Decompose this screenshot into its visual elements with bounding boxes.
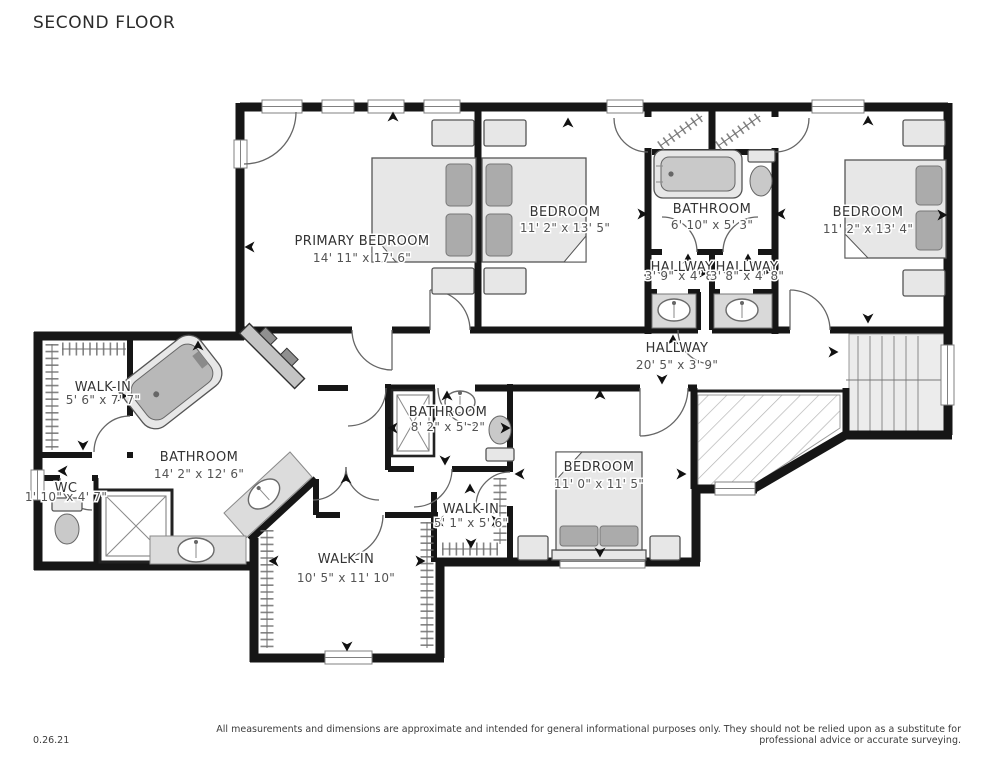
nightstand-icon (432, 120, 474, 146)
room-label-walk-in-bottom: WALK-IN (318, 552, 375, 567)
room-dims-walk-in-bottom: 10' 5" x 11' 10" (297, 571, 395, 585)
nightstand-icon (484, 268, 526, 294)
closet-rod-icon (660, 116, 702, 146)
door-arc (94, 416, 130, 452)
floor-plan-canvas: PRIMARY BEDROOM 14' 11" x 17' 6" BEDROOM… (0, 0, 994, 768)
nightstand-icon (432, 268, 474, 294)
window (812, 100, 864, 113)
window (424, 100, 460, 113)
room-label-bedroom-bottom: BEDROOM (564, 460, 635, 475)
room-label-walk-in-center: WALK-IN (443, 502, 500, 517)
room-dims-primary-bedroom: 14' 11" x 17' 6" (313, 251, 411, 265)
door-arc (430, 290, 470, 330)
bathtub-icon (654, 150, 742, 198)
room-dims-bathroom-center: 8' 2" x 5' 2" (411, 420, 485, 434)
disclaimer-text: All measurements and dimensions are appr… (201, 724, 961, 746)
window (368, 100, 404, 113)
room-dims-bathroom-top: 6' 10" x 5' 3" (671, 218, 753, 232)
door-arc (790, 290, 830, 330)
nightstand-icon (650, 536, 680, 560)
open-to-below-void (698, 395, 840, 486)
room-dims-bedroom-bottom: 11' 0" x 11' 5" (554, 477, 644, 491)
window (715, 482, 755, 495)
room-label-bedroom-top-middle: BEDROOM (530, 205, 601, 220)
room-label-bathroom-center: BATHROOM (409, 405, 487, 420)
window (607, 100, 643, 113)
toilet-icon (52, 498, 82, 544)
room-dims-walk-in-center: 5' 1" x 5' 6" (434, 516, 508, 530)
door-arc (352, 330, 392, 370)
staircase (846, 334, 948, 434)
closet-rod-icon (718, 116, 760, 146)
door-arc (614, 118, 648, 152)
vanity-sink (714, 294, 772, 328)
window (322, 100, 354, 113)
double-door-arcs (313, 467, 379, 500)
room-dims-wc: 1' 10" x 4' 7" (25, 490, 107, 504)
vanity-sink (652, 294, 696, 328)
nightstand-icon (903, 270, 945, 296)
room-label-hallway-main: HALLWAY (646, 341, 709, 356)
door-arc (640, 388, 688, 436)
door-arc (348, 388, 386, 426)
footer: 0.26.21 All measurements and dimensions … (33, 724, 961, 746)
closet-rod-icon (267, 522, 427, 648)
window (941, 345, 954, 405)
room-label-bathroom-top: BATHROOM (673, 202, 751, 217)
room-dims-hallway-jack-left: 3' 9" x 4' 8" (645, 269, 719, 283)
window (325, 651, 372, 664)
door-arc (775, 118, 809, 152)
toilet-icon (748, 150, 775, 196)
nightstand-icon (903, 120, 945, 146)
room-dims-hallway-jack-right: 3' 8" x 4' 8" (710, 269, 784, 283)
room-label-primary-bedroom: PRIMARY BEDROOM (295, 234, 430, 249)
room-dims-bathroom-primary: 14' 2" x 12' 6" (154, 467, 244, 481)
room-dims-hallway-main: 20' 5" x 3' 9" (636, 358, 718, 372)
door-arc (244, 112, 296, 164)
room-label-bedroom-top-right: BEDROOM (833, 205, 904, 220)
window (262, 100, 302, 113)
door-arc (476, 472, 510, 506)
plan-date: 0.26.21 (33, 735, 69, 746)
room-dims-bedroom-top-right: 11' 2" x 13' 4" (823, 222, 913, 236)
nightstand-icon (518, 536, 548, 560)
room-dims-walk-in-left: 5' 6" x 7' 7" (66, 393, 140, 407)
room-dims-bedroom-top-middle: 11' 2" x 13' 5" (520, 221, 610, 235)
nightstand-icon (484, 120, 526, 146)
room-label-bathroom-primary: BATHROOM (160, 450, 238, 465)
